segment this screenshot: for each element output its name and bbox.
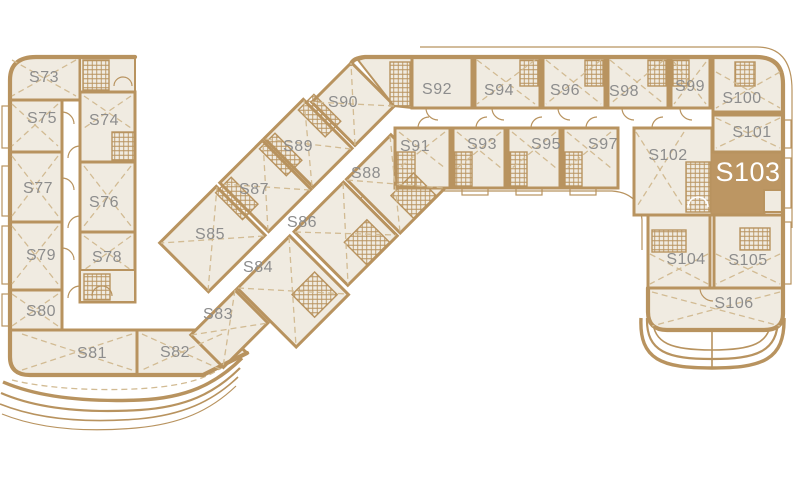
stairwell — [390, 62, 410, 106]
unit-label-s91: S91 — [400, 138, 430, 155]
unit-label-s103-selected: S103 — [715, 157, 780, 187]
unit-label-s92: S92 — [422, 81, 452, 98]
unit-label-s83: S83 — [203, 306, 233, 323]
unit-label-s94: S94 — [484, 82, 514, 99]
unit-label-s93: S93 — [467, 136, 497, 153]
unit-label-s104: S104 — [666, 251, 705, 268]
unit-label-s88: S88 — [351, 165, 381, 182]
unit-label-s79: S79 — [26, 247, 56, 264]
stairwell — [112, 132, 135, 160]
utility-room-s103 — [764, 190, 783, 212]
unit-label-s96: S96 — [550, 82, 580, 99]
unit-label-s90: S90 — [328, 94, 358, 111]
unit-label-s99: S99 — [675, 78, 705, 95]
unit-label-s86: S86 — [287, 214, 317, 231]
unit-label-s97: S97 — [588, 136, 618, 153]
unit-label-s102: S102 — [648, 147, 687, 164]
unit-label-s101: S101 — [732, 124, 771, 141]
floor-plan: S73 S74 S75 S76 S77 S78 S79 S80 S81 S82 … — [0, 0, 800, 500]
unit-label-s74: S74 — [89, 112, 119, 129]
unit-label-s76: S76 — [89, 194, 119, 211]
stairwell — [686, 162, 710, 212]
stairwell — [648, 60, 666, 86]
unit-label-s80: S80 — [26, 303, 56, 320]
unit-label-s78: S78 — [92, 249, 122, 266]
unit-label-s95: S95 — [531, 136, 561, 153]
unit-label-s73: S73 — [29, 69, 59, 86]
unit-label-s81: S81 — [77, 345, 107, 362]
stairwell — [740, 228, 770, 250]
unit-label-s77: S77 — [23, 180, 53, 197]
unit-label-s89: S89 — [283, 138, 313, 155]
stairwell — [520, 60, 538, 86]
unit-label-s87: S87 — [239, 181, 269, 198]
unit-label-s100: S100 — [722, 90, 761, 107]
unit-label-s98: S98 — [609, 83, 639, 100]
unit-label-s84: S84 — [243, 259, 273, 276]
stairwell — [585, 60, 603, 86]
unit-label-s105: S105 — [728, 252, 767, 269]
stairwell — [735, 62, 755, 86]
unit-label-s82: S82 — [160, 344, 190, 361]
unit-label-s106: S106 — [714, 295, 753, 312]
unit-label-s75: S75 — [27, 110, 57, 127]
unit-label-s85: S85 — [195, 226, 225, 243]
stairwell — [83, 60, 109, 90]
stairwell — [652, 230, 686, 252]
